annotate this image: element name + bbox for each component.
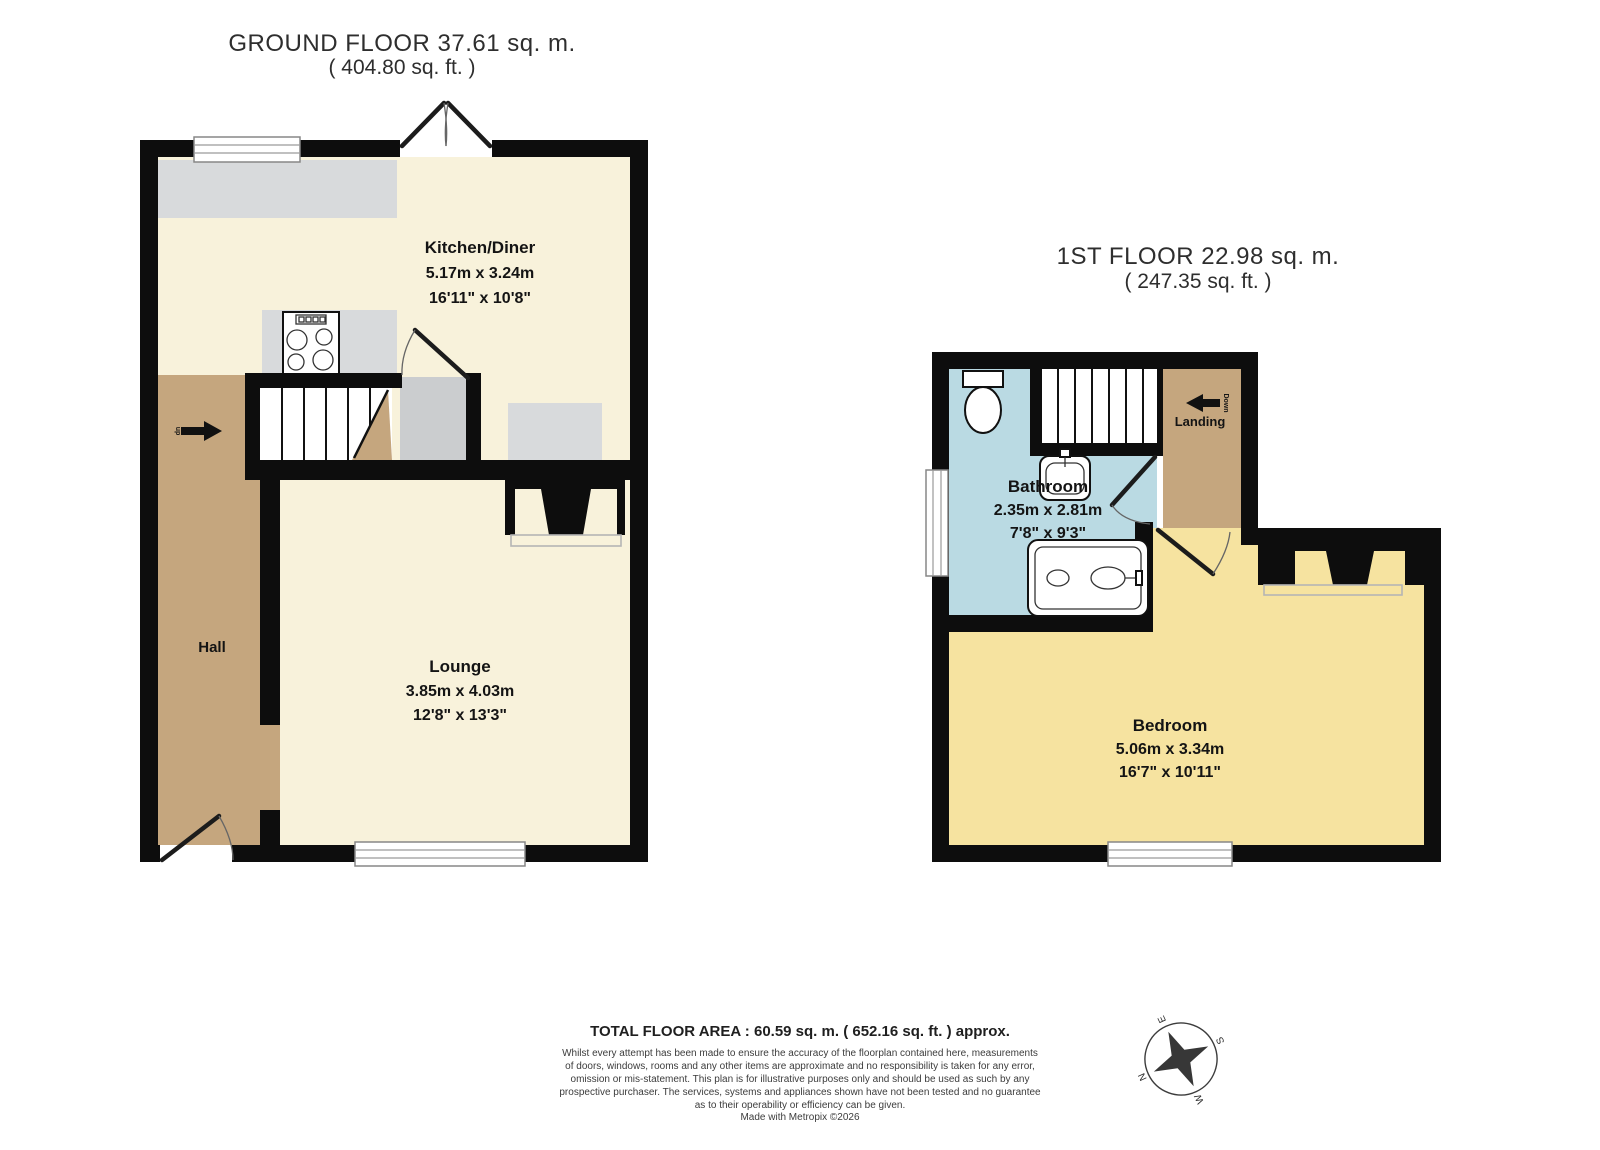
- stairs-up-label: up: [174, 427, 181, 436]
- bedroom-label: Bedroom: [1133, 716, 1208, 735]
- patio-double-door: [402, 103, 490, 146]
- first-floor-plan: Down Landing Bathroom 2.35m x 2.81m 7'8"…: [926, 352, 1441, 866]
- credit-line: Made with Metropix ©2026: [0, 1112, 1600, 1123]
- disclaimer-line-4: prospective purchaser. The services, sys…: [0, 1086, 1600, 1099]
- kitchen-size-ft: 16'11" x 10'8": [429, 290, 531, 307]
- bathroom-size-ft: 7'8" x 9'3": [1010, 525, 1086, 542]
- stove-icon: [283, 312, 339, 375]
- bathtub-icon: [1028, 540, 1148, 616]
- kitchen-size-m: 5.17m x 3.24m: [426, 265, 535, 282]
- bedroom-floor-lower: [949, 632, 1424, 845]
- ground-stairs: [260, 388, 392, 460]
- total-floor-area: TOTAL FLOOR AREA : 60.59 sq. m. ( 652.16…: [0, 1023, 1600, 1040]
- lounge-size-ft: 12'8" x 13'3": [413, 707, 507, 724]
- lounge-window: [355, 842, 525, 866]
- lounge-label: Lounge: [429, 657, 490, 676]
- kitchen-counter: [158, 160, 397, 218]
- disclaimer-line-5: as to their operability or efficiency ca…: [0, 1099, 1600, 1112]
- hall-label: Hall: [198, 639, 226, 656]
- kitchen-label: Kitchen/Diner: [425, 238, 536, 257]
- stairs-down-label: Down: [1222, 393, 1229, 412]
- first-floor-stairs: [1042, 369, 1157, 443]
- lounge-size-m: 3.85m x 4.03m: [406, 683, 515, 700]
- kitchen-window: [194, 137, 300, 162]
- bedroom-window: [1108, 842, 1232, 866]
- bathroom-size-m: 2.35m x 2.81m: [994, 502, 1103, 519]
- disclaimer-line-3: omission or mis-statement. This plan is …: [0, 1073, 1600, 1086]
- bathroom-label: Bathroom: [1008, 477, 1088, 496]
- landing-label: Landing: [1175, 414, 1226, 429]
- kitchen-appliance-block: [508, 403, 602, 463]
- bedroom-size-ft: 16'7" x 10'11": [1119, 764, 1221, 781]
- toilet-icon: [963, 371, 1003, 433]
- cupboard-block: [400, 377, 466, 461]
- ground-floor-plan: up Kitchen/Diner 5.17m x 3.24m 16'11" x …: [140, 103, 648, 866]
- disclaimer-line-1: Whilst every attempt has been made to en…: [0, 1047, 1600, 1060]
- floorplan-canvas: up Kitchen/Diner 5.17m x 3.24m 16'11" x …: [0, 0, 1600, 1150]
- disclaimer-line-2: of doors, windows, rooms and any other i…: [0, 1060, 1600, 1073]
- bedroom-size-m: 5.06m x 3.34m: [1116, 741, 1225, 758]
- bathroom-window: [926, 470, 948, 576]
